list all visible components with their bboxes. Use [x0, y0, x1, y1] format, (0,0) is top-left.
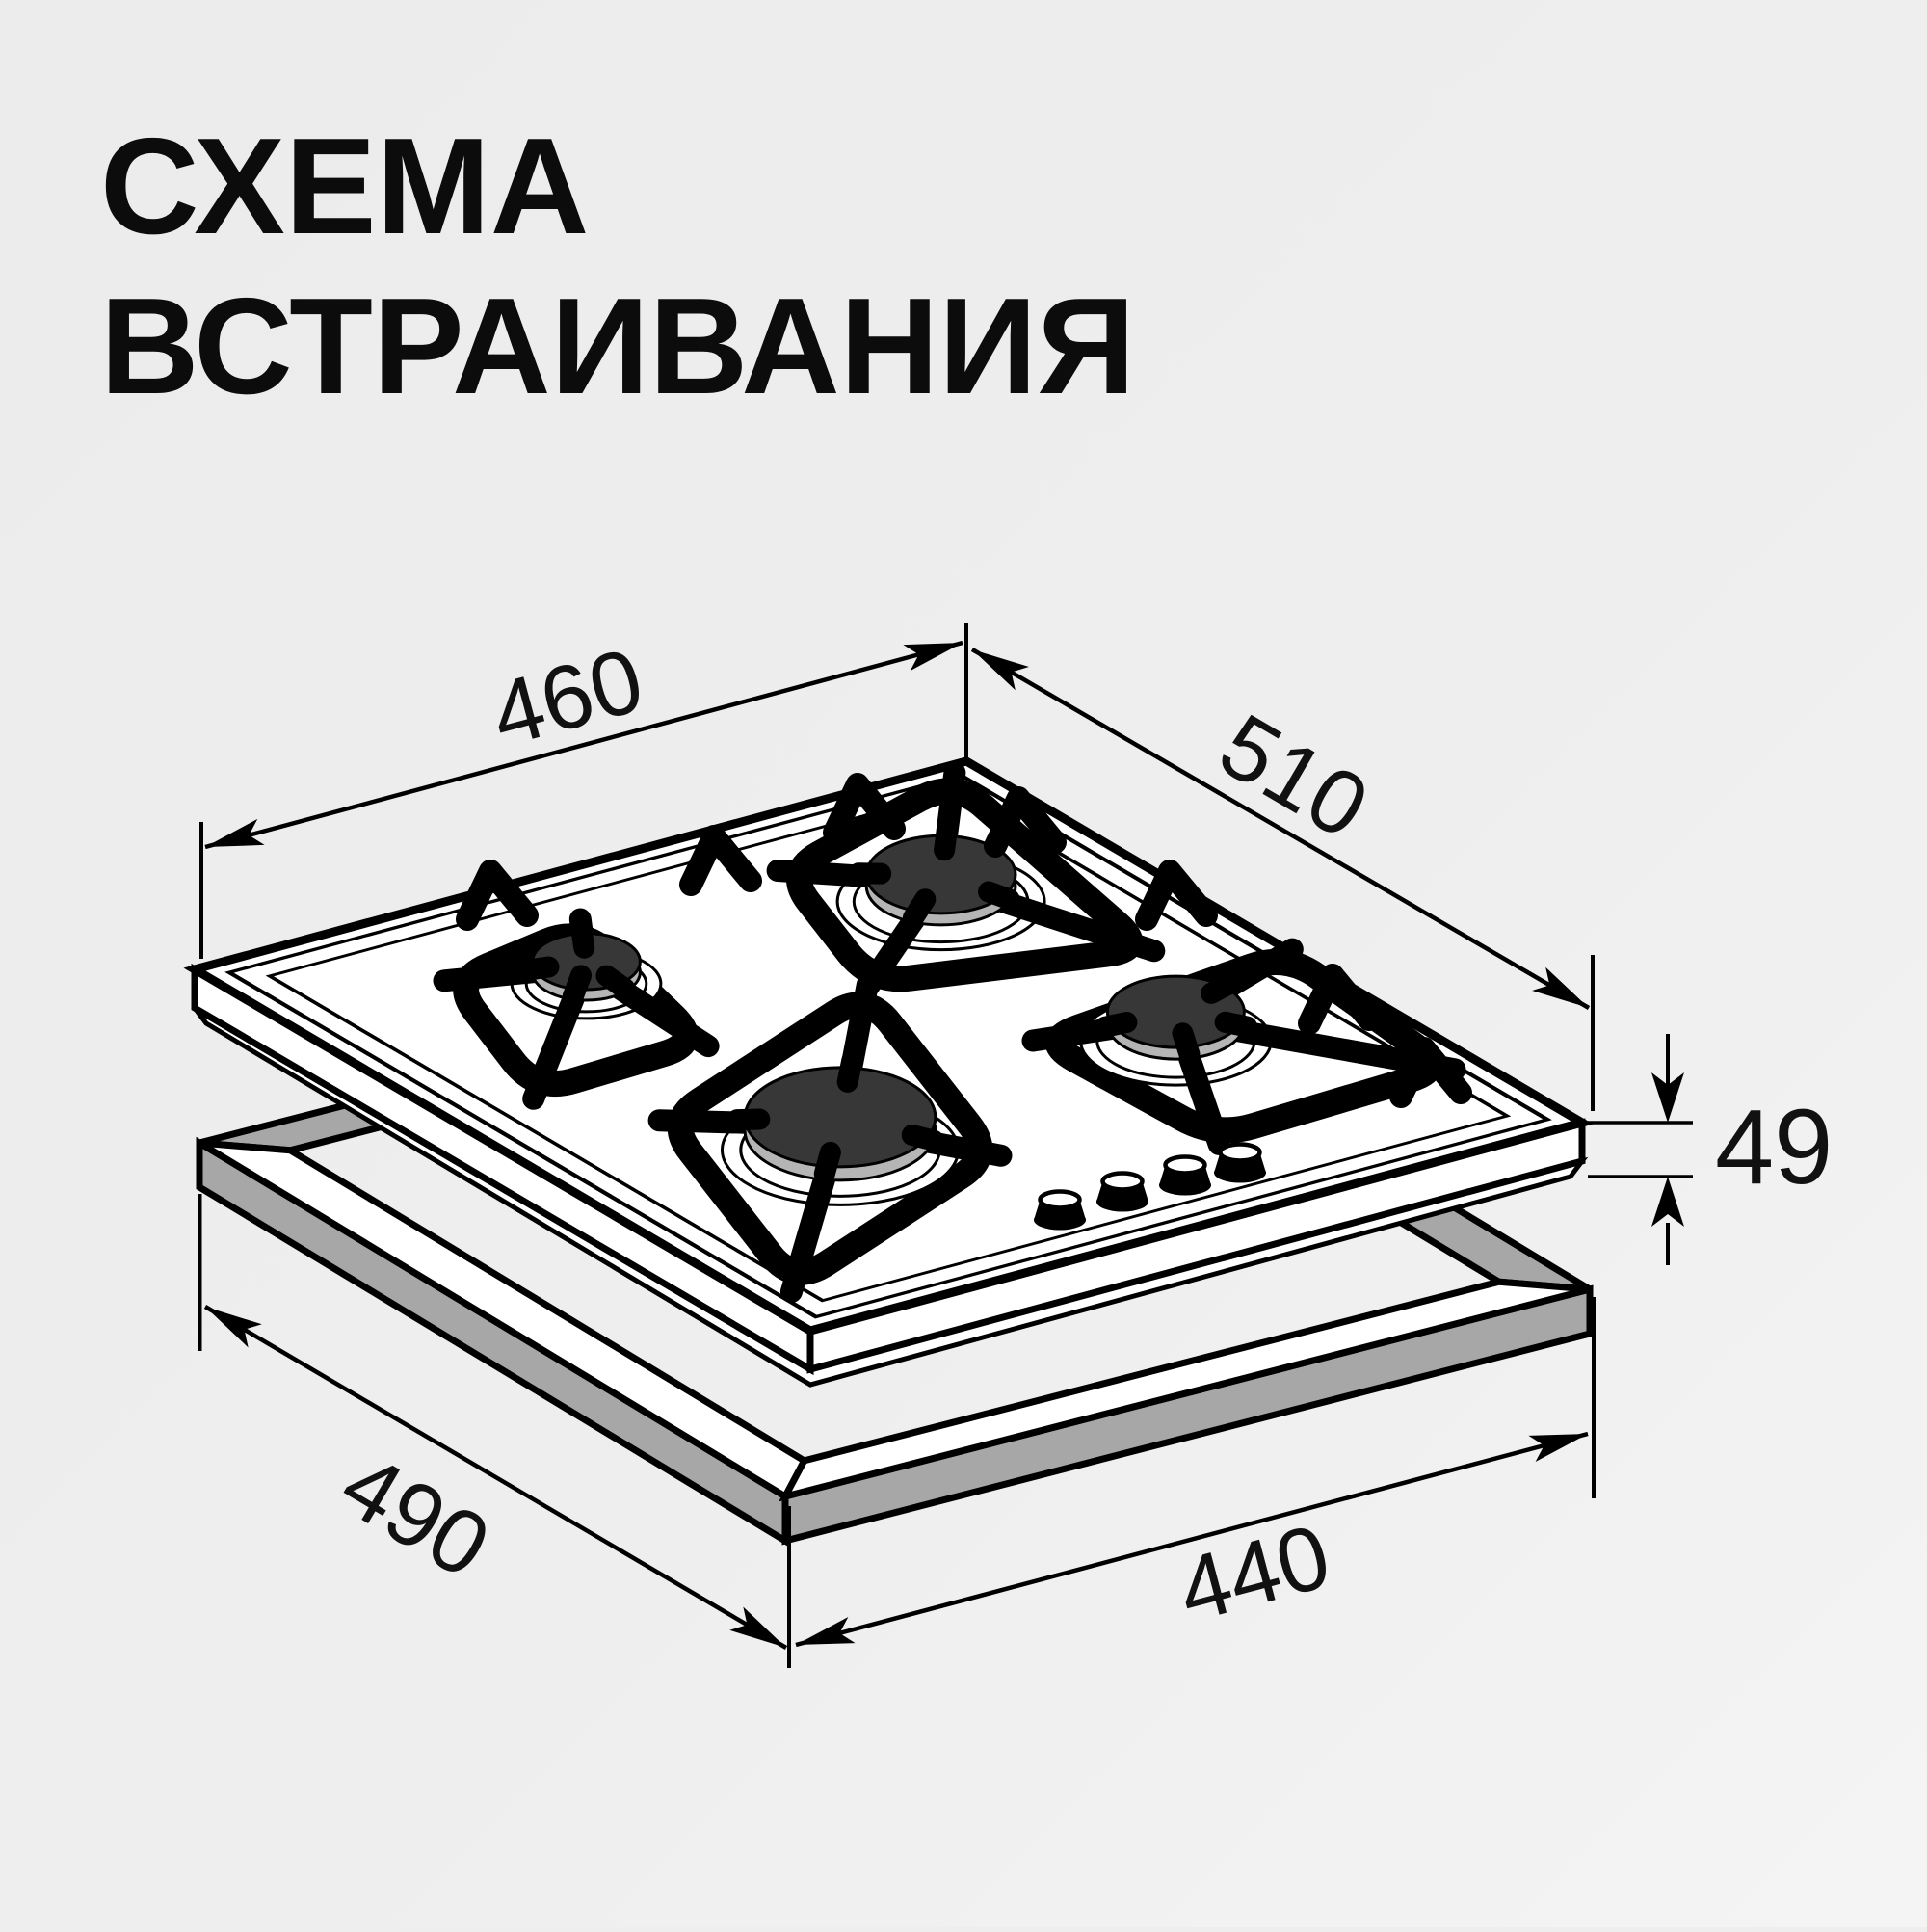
svg-text:ВСТРАИВАНИЯ: ВСТРАИВАНИЯ — [100, 270, 1135, 423]
svg-text:СХЕМА: СХЕМА — [100, 110, 589, 263]
svg-text:49: 49 — [1715, 1088, 1833, 1206]
